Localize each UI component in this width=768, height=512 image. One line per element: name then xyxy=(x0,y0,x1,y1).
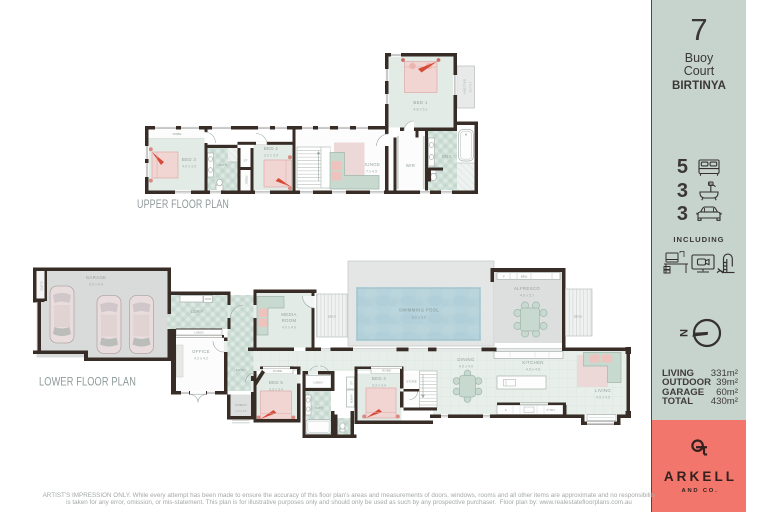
svg-text:LINEN: LINEN xyxy=(313,381,322,385)
svg-text:ENS: ENS xyxy=(442,154,452,159)
svg-text:LINEN: LINEN xyxy=(350,394,354,403)
svg-text:LOWER FLOOR PLAN: LOWER FLOOR PLAN xyxy=(39,375,136,389)
svg-text:BALCONY: BALCONY xyxy=(463,79,467,94)
svg-text:BED 5: BED 5 xyxy=(269,380,283,385)
svg-text:BBQ: BBQ xyxy=(521,275,528,279)
svg-text:ROBE: ROBE xyxy=(245,176,249,185)
svg-text:PORCH: PORCH xyxy=(235,403,246,407)
svg-text:4.5 x 4.5: 4.5 x 4.5 xyxy=(459,365,473,369)
svg-text:KITCHEN: KITCHEN xyxy=(522,360,543,365)
svg-text:F: F xyxy=(503,275,505,279)
svg-text:ROBE: ROBE xyxy=(382,369,391,373)
svg-text:P'TRY: P'TRY xyxy=(547,408,556,412)
svg-text:9.0 x 6.4: 9.0 x 6.4 xyxy=(89,283,103,287)
svg-text:SWIMMING POOL: SWIMMING POOL xyxy=(399,308,440,313)
svg-text:DINING: DINING xyxy=(457,357,474,362)
svg-text:F: F xyxy=(505,408,507,412)
svg-text:BED 2: BED 2 xyxy=(264,146,278,151)
svg-text:4.5 x 4.5: 4.5 x 4.5 xyxy=(526,368,540,372)
svg-text:ROOM: ROOM xyxy=(282,318,297,323)
svg-text:2.0 x 2.6: 2.0 x 2.6 xyxy=(235,409,246,413)
svg-text:4.0 x 3.9: 4.0 x 3.9 xyxy=(182,165,196,169)
svg-text:LDRY: LDRY xyxy=(191,309,204,314)
svg-text:N: N xyxy=(677,329,689,337)
svg-text:DECK: DECK xyxy=(328,315,338,319)
svg-text:WIR: WIR xyxy=(406,163,415,168)
svg-text:1.5 x 3.0: 1.5 x 3.0 xyxy=(469,82,473,93)
svg-text:BED 3: BED 3 xyxy=(182,157,196,162)
svg-text:UPPER FLOOR PLAN: UPPER FLOOR PLAN xyxy=(137,197,229,211)
svg-text:ROBE: ROBE xyxy=(173,132,182,136)
svg-text:ST: ST xyxy=(244,159,248,163)
svg-text:4.0 x 4.0: 4.0 x 4.0 xyxy=(282,326,296,330)
svg-text:MEDIA: MEDIA xyxy=(281,312,296,317)
svg-text:4.8 x 5.1: 4.8 x 5.1 xyxy=(413,108,427,112)
svg-text:LINEN: LINEN xyxy=(194,331,203,335)
svg-text:4.6 x 5.7: 4.6 x 5.7 xyxy=(520,294,534,298)
svg-text:CUP'D: CUP'D xyxy=(40,281,44,291)
svg-text:BED 1: BED 1 xyxy=(413,100,427,105)
svg-text:STORE: STORE xyxy=(406,380,417,384)
svg-text:DECK: DECK xyxy=(574,315,584,319)
svg-text:GARAGE: GARAGE xyxy=(86,275,107,280)
svg-text:LG: LG xyxy=(350,381,354,386)
svg-text:ENTRY: ENTRY xyxy=(236,368,246,372)
svg-text:3.3 x 3.4: 3.3 x 3.4 xyxy=(372,384,386,388)
svg-text:BATH: BATH xyxy=(315,406,323,410)
svg-text:OFFICE: OFFICE xyxy=(192,349,210,354)
svg-text:3.2 x 3.4: 3.2 x 3.4 xyxy=(264,154,278,158)
svg-text:LIVING: LIVING xyxy=(595,388,611,393)
svg-text:4.7 x 4.5: 4.7 x 4.5 xyxy=(363,170,377,174)
svg-text:4.5 x 4.5: 4.5 x 4.5 xyxy=(596,396,610,400)
svg-text:8.0 x 5.0: 8.0 x 5.0 xyxy=(412,316,426,320)
svg-text:W/M: W/M xyxy=(205,297,212,301)
svg-text:ALFRESCO: ALFRESCO xyxy=(514,286,540,291)
svg-text:4.2 x 4.2: 4.2 x 4.2 xyxy=(194,357,208,361)
svg-text:BED 4: BED 4 xyxy=(372,376,386,381)
svg-text:ROBE: ROBE xyxy=(273,369,282,373)
svg-text:BATH: BATH xyxy=(219,163,227,167)
